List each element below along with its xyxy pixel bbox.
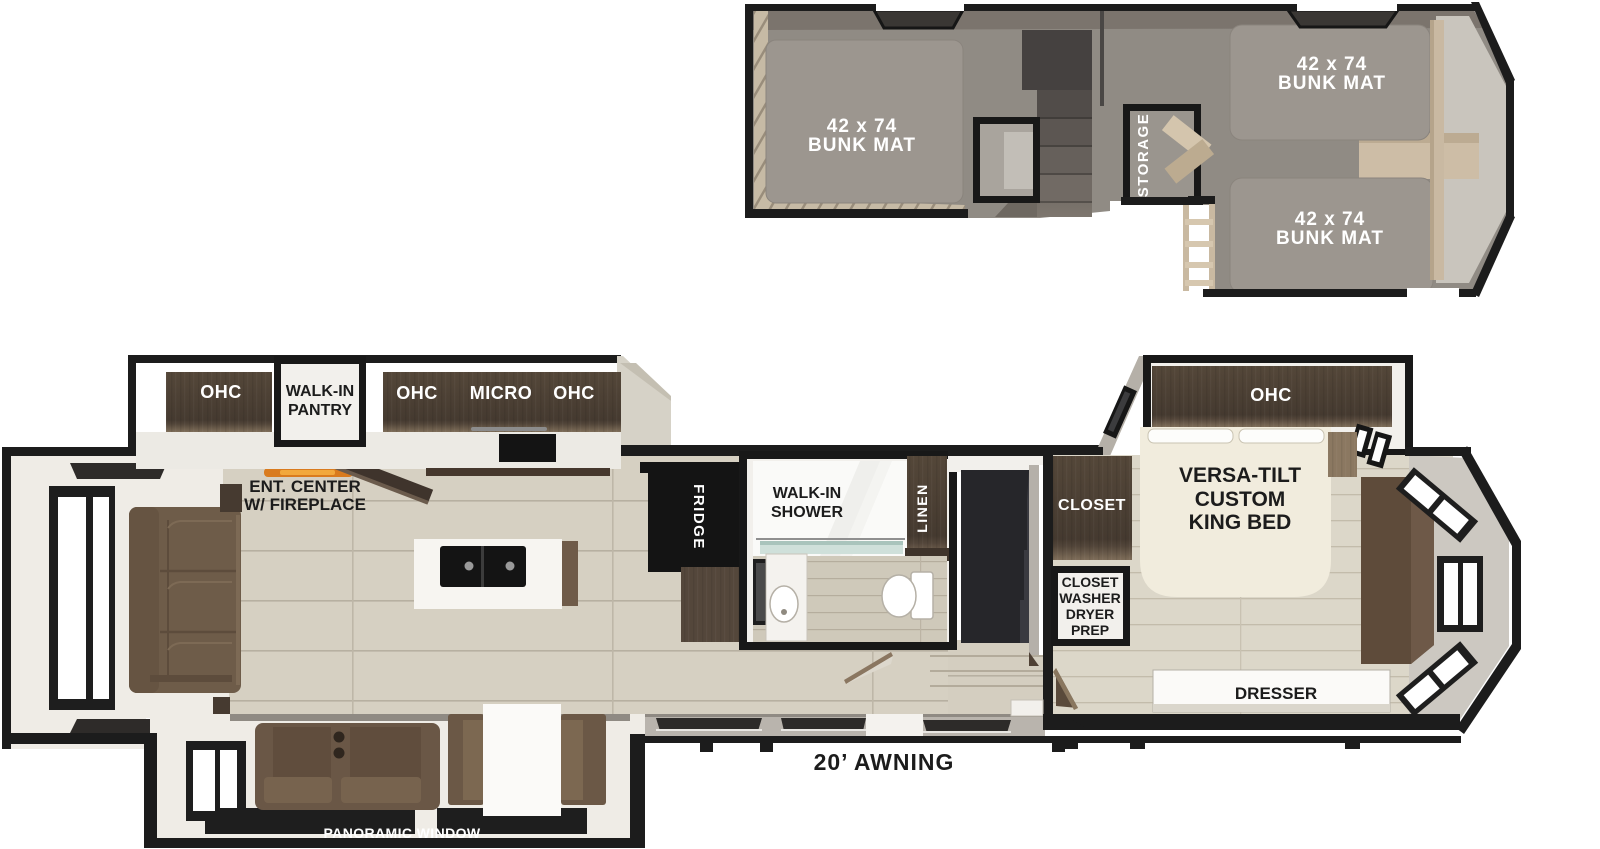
svg-text:BUNK MAT: BUNK MAT bbox=[1276, 228, 1384, 249]
svg-text:OHC: OHC bbox=[553, 383, 595, 403]
svg-text:OHC: OHC bbox=[200, 382, 242, 402]
svg-text:20’ AWNING: 20’ AWNING bbox=[814, 749, 955, 775]
svg-text:MICRO: MICRO bbox=[470, 383, 533, 403]
svg-text:ENT. CENTER: ENT. CENTER bbox=[249, 477, 360, 496]
svg-text:VERSA-TILT: VERSA-TILT bbox=[1179, 464, 1301, 487]
svg-text:BUNK MAT: BUNK MAT bbox=[808, 135, 916, 156]
svg-text:WALK-IN: WALK-IN bbox=[773, 485, 841, 502]
svg-text:42 x 74: 42 x 74 bbox=[1295, 209, 1365, 230]
svg-text:DRESSER: DRESSER bbox=[1235, 684, 1317, 703]
svg-text:DRYER: DRYER bbox=[1066, 606, 1115, 622]
svg-text:BUNK MAT: BUNK MAT bbox=[1278, 73, 1386, 94]
svg-text:STORAGE: STORAGE bbox=[1135, 113, 1152, 197]
svg-text:PANORAMIC WINDOW: PANORAMIC WINDOW bbox=[323, 825, 480, 841]
svg-text:PREP: PREP bbox=[1071, 622, 1109, 638]
svg-text:W/ FIREPLACE: W/ FIREPLACE bbox=[244, 495, 366, 514]
svg-text:LINEN: LINEN bbox=[914, 483, 930, 533]
svg-text:WASHER: WASHER bbox=[1059, 590, 1120, 606]
svg-text:SHOWER: SHOWER bbox=[771, 504, 843, 521]
svg-text:KING BED: KING BED bbox=[1189, 511, 1292, 534]
svg-text:CUSTOM: CUSTOM bbox=[1195, 488, 1286, 511]
svg-text:WALK-IN: WALK-IN bbox=[286, 383, 354, 400]
svg-text:OHC: OHC bbox=[1250, 385, 1292, 405]
svg-text:OHC: OHC bbox=[396, 383, 438, 403]
svg-text:FRIDGE: FRIDGE bbox=[690, 484, 707, 550]
svg-text:42 x 74: 42 x 74 bbox=[1297, 54, 1367, 75]
svg-text:CLOSET: CLOSET bbox=[1062, 574, 1119, 590]
svg-text:PANTRY: PANTRY bbox=[288, 402, 352, 419]
svg-text:CLOSET: CLOSET bbox=[1058, 497, 1126, 514]
svg-text:42 x 74: 42 x 74 bbox=[827, 116, 897, 137]
